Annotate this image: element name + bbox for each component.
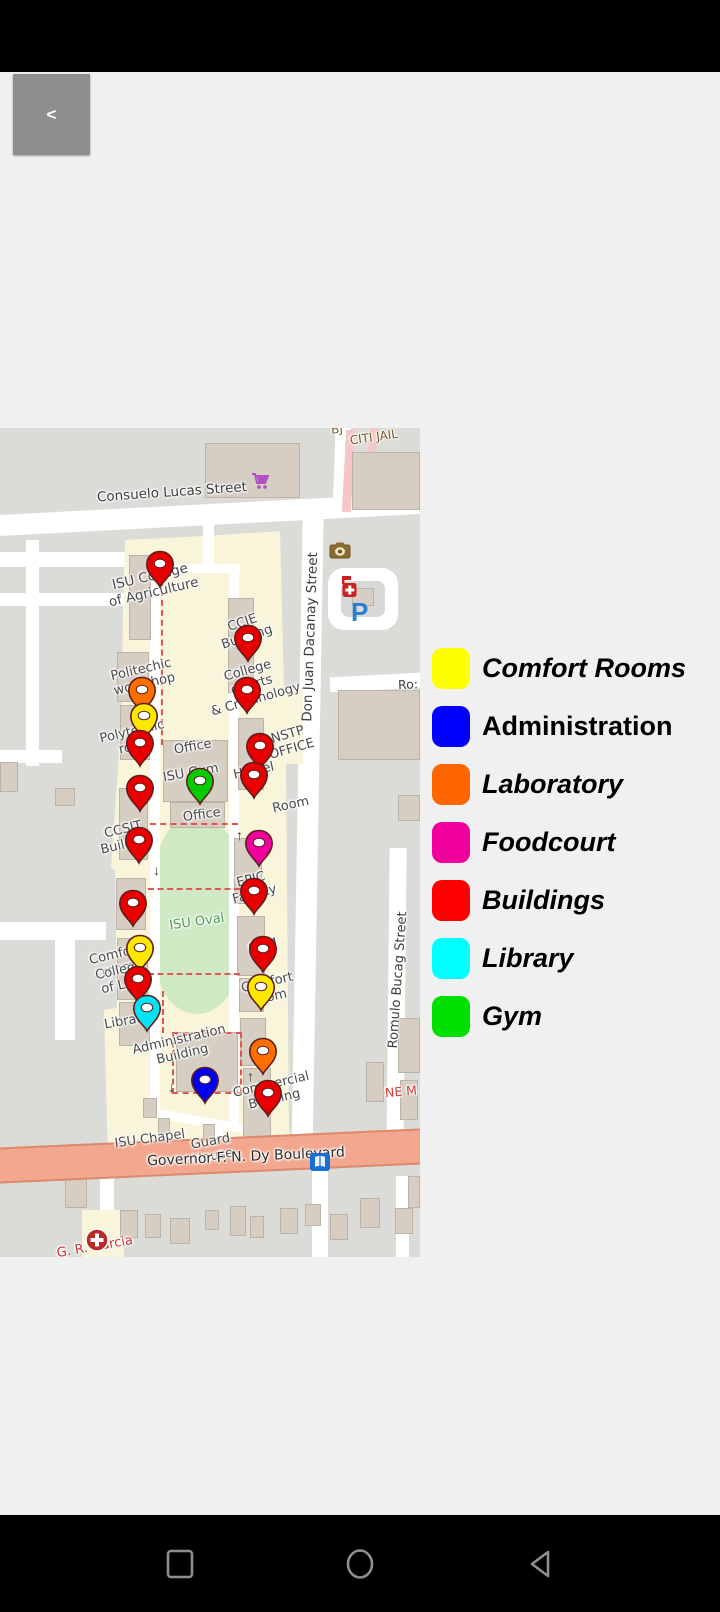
campus-map-image: Consuelo Lucas StreetBJCITI JAILDon Juan… [0, 428, 420, 1257]
map-shape [55, 938, 75, 1040]
map-shape [0, 552, 130, 567]
legend-item-laboratory: Laboratory [432, 764, 712, 805]
legend-swatch-foodcourt [432, 822, 470, 863]
map-marker-building [233, 624, 263, 664]
status-bar [0, 0, 720, 72]
map-shape [360, 1198, 380, 1228]
recents-square-icon [165, 1549, 195, 1579]
map-label-ro: Ro: [398, 677, 419, 692]
map-marker-building [232, 676, 262, 716]
map-marker-administration [190, 1066, 220, 1106]
map-shape [26, 540, 39, 766]
legend-label-library: Library [482, 943, 574, 974]
legend-label-administration: Administration [482, 711, 673, 742]
map-legend: Comfort RoomsAdministrationLaboratoryFoo… [432, 648, 712, 1054]
map-shape [352, 452, 420, 510]
map-shape [0, 762, 18, 792]
legend-item-gym: Gym [432, 996, 712, 1037]
map-shape [143, 1098, 157, 1118]
map-shape [203, 516, 214, 570]
map-shape [162, 991, 164, 1033]
map-shape [170, 1218, 190, 1244]
map-shape [148, 973, 240, 975]
map-shape [338, 690, 420, 760]
map-marker-building [125, 774, 155, 814]
home-button[interactable] [330, 1534, 390, 1594]
android-nav-bar [0, 1515, 720, 1612]
legend-swatch-comfort-rooms [432, 648, 470, 689]
map-marker-foodcourt [244, 829, 274, 869]
map-shape [65, 1178, 87, 1208]
legend-swatch-administration [432, 706, 470, 747]
app-screen: < Consuelo Lucas StreetBJCITI JAILDon Ju… [0, 72, 720, 1515]
map-shape [398, 795, 420, 821]
legend-item-administration: Administration [432, 706, 712, 747]
home-circle-icon [344, 1548, 376, 1580]
map-marker-building [248, 935, 278, 975]
map-marker-building [145, 550, 175, 590]
recents-button[interactable] [150, 1534, 210, 1594]
legend-item-library: Library [432, 938, 712, 979]
back-nav-button[interactable] [510, 1534, 570, 1594]
legend-label-buildings: Buildings [482, 885, 605, 916]
legend-item-buildings: Buildings [432, 880, 712, 921]
map-shape [366, 1062, 384, 1102]
map-shape [305, 1204, 321, 1226]
map-marker-building [125, 729, 155, 769]
map-shape [145, 1214, 161, 1238]
map-shape [0, 922, 106, 940]
map-marker-gym [185, 767, 215, 807]
map-marker-comfort-room [246, 973, 276, 1013]
map-shape [280, 1208, 298, 1234]
legend-item-comfort-rooms: Comfort Rooms [432, 648, 712, 689]
legend-label-foodcourt: Foodcourt [482, 827, 615, 858]
map-marker-library [132, 994, 162, 1034]
map-shape [250, 1216, 264, 1238]
legend-label-laboratory: Laboratory [482, 769, 623, 800]
map-shape [395, 1208, 413, 1234]
map-label-ne-m: NE M [384, 1083, 417, 1100]
map-label-consuelo-lucas-street: Consuelo Lucas Street [96, 480, 247, 506]
back-triangle-icon [524, 1548, 556, 1580]
legend-item-foodcourt: Foodcourt [432, 822, 712, 863]
map-shape [408, 1176, 420, 1208]
map-marker-building [118, 889, 148, 929]
legend-swatch-buildings [432, 880, 470, 921]
map-marker-building [124, 826, 154, 866]
map-marker-building [239, 761, 269, 801]
map-label-bj: BJ [330, 428, 344, 438]
legend-swatch-library [432, 938, 470, 979]
map-shape [230, 1206, 246, 1236]
legend-swatch-laboratory [432, 764, 470, 805]
map-marker-building [253, 1079, 283, 1119]
map-shape [55, 788, 75, 806]
legend-label-comfort-rooms: Comfort Rooms [482, 653, 686, 684]
map-shape [205, 1210, 219, 1230]
map-shape [148, 888, 240, 890]
legend-label-gym: Gym [482, 1001, 542, 1032]
map-marker-building [239, 877, 269, 917]
back-button[interactable]: < [13, 74, 90, 155]
map-shape [330, 1214, 348, 1240]
legend-swatch-gym [432, 996, 470, 1037]
map-marker-laboratory [248, 1037, 278, 1077]
